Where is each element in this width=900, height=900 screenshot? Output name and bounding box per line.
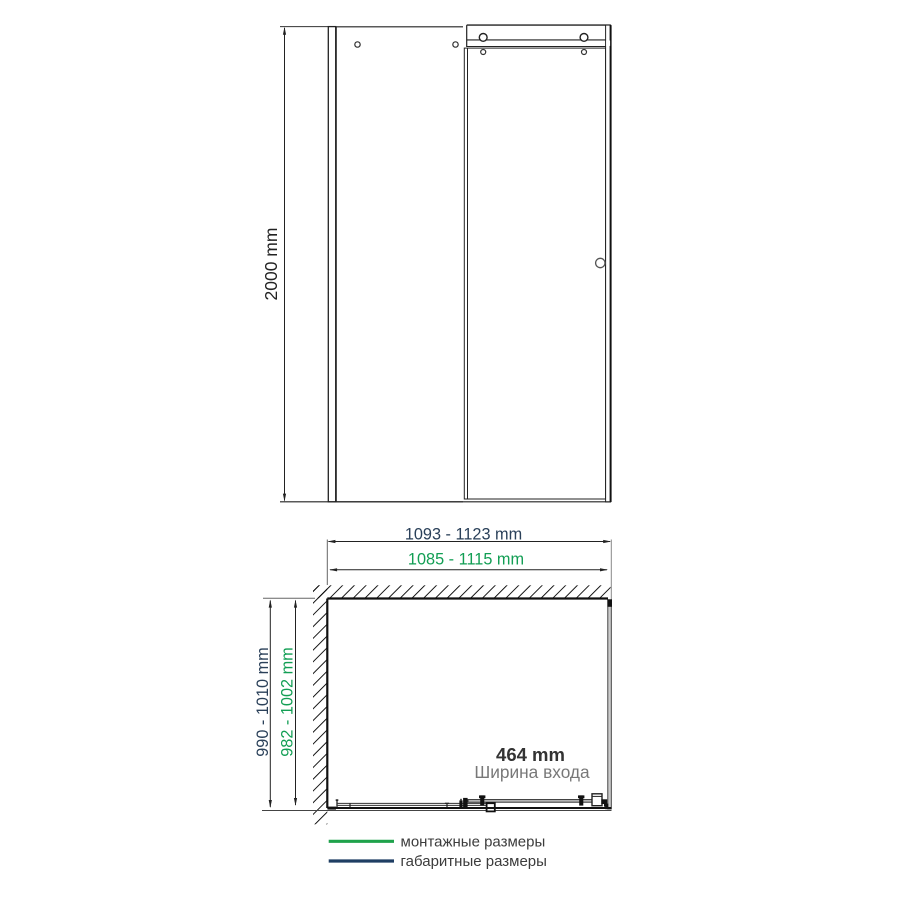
svg-text:1085 - 1115 mm: 1085 - 1115 mm — [408, 551, 524, 569]
svg-text:монтажные размеры: монтажные размеры — [401, 834, 546, 851]
svg-text:2000 mm: 2000 mm — [261, 228, 281, 301]
svg-text:982 - 1002 mm: 982 - 1002 mm — [278, 647, 296, 757]
svg-text:габаритные размеры: габаритные размеры — [401, 853, 547, 870]
svg-text:990 - 1010 mm: 990 - 1010 mm — [254, 647, 272, 757]
svg-text:Ширина входа: Ширина входа — [474, 762, 590, 782]
svg-text:1093 - 1123 mm: 1093 - 1123 mm — [405, 526, 522, 544]
